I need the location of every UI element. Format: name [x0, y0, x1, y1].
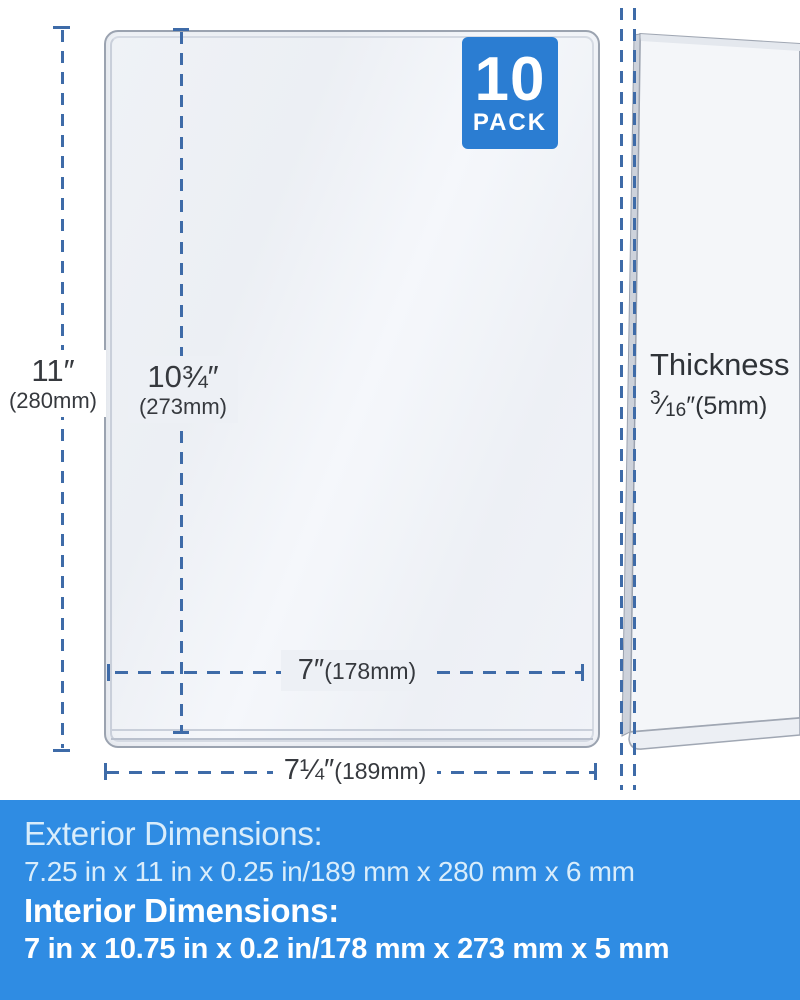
- thickness-title: Thickness: [650, 346, 798, 384]
- interior-width-right-tick: [581, 664, 584, 681]
- exterior-height-label: 11″ (280mm): [0, 350, 106, 417]
- pack-count-badge: 10 PACK: [462, 37, 558, 149]
- exterior-width-label: 7¼″(189mm): [273, 750, 437, 791]
- exterior-height-top-tick: [53, 26, 70, 29]
- thickness-fraction-denominator: 16: [665, 400, 686, 421]
- pack-count-text: PACK: [473, 110, 547, 136]
- dimensions-banner: Exterior Dimensions: 7.25 in x 11 in x 0…: [0, 800, 800, 1000]
- exterior-height-value: 11″: [0, 353, 106, 388]
- interior-width-label: 7″(178mm): [281, 650, 433, 691]
- exterior-width-metric: (189mm): [334, 758, 426, 784]
- exterior-width-left-tick: [104, 763, 107, 780]
- exterior-height-bottom-tick: [53, 749, 70, 752]
- interior-height-metric: (273mm): [128, 394, 238, 420]
- interior-dimensions-value: 7 in x 10.75 in x 0.2 in/178 mm x 273 mm…: [24, 930, 800, 968]
- interior-width-metric: (178mm): [324, 658, 416, 684]
- thickness-value: 3⁄16″(5mm): [650, 384, 798, 426]
- pack-count-number: 10: [475, 50, 546, 110]
- interior-dimensions-title: Interior Dimensions:: [24, 891, 800, 930]
- toploader-bottom-edge-line: [111, 738, 593, 740]
- exterior-dimensions-value: 7.25 in x 11 in x 0.25 in/189 mm x 280 m…: [24, 853, 800, 891]
- exterior-width-right-tick: [594, 763, 597, 780]
- exterior-width-value: 7¼″: [284, 754, 335, 786]
- product-dimension-diagram: 11″ (280mm) 10¾″ (273mm) 7″(178mm) 7¼″(1…: [0, 0, 800, 1000]
- thickness-dash-line-left: [620, 8, 623, 790]
- thickness-label: Thickness 3⁄16″(5mm): [650, 346, 798, 426]
- interior-height-top-tick: [173, 28, 189, 31]
- exterior-dimensions-title: Exterior Dimensions:: [24, 815, 800, 853]
- thickness-dash-line-right: [633, 8, 636, 790]
- interior-height-value: 10¾″: [128, 359, 238, 394]
- interior-width-value: 7″: [298, 654, 324, 686]
- thickness-fraction-numerator: 3: [650, 388, 661, 409]
- thickness-metric: ″(5mm): [686, 392, 767, 420]
- interior-width-left-tick: [107, 664, 110, 681]
- interior-height-bottom-tick: [173, 731, 189, 734]
- interior-height-label: 10¾″ (273mm): [128, 356, 238, 423]
- exterior-height-metric: (280mm): [0, 388, 106, 414]
